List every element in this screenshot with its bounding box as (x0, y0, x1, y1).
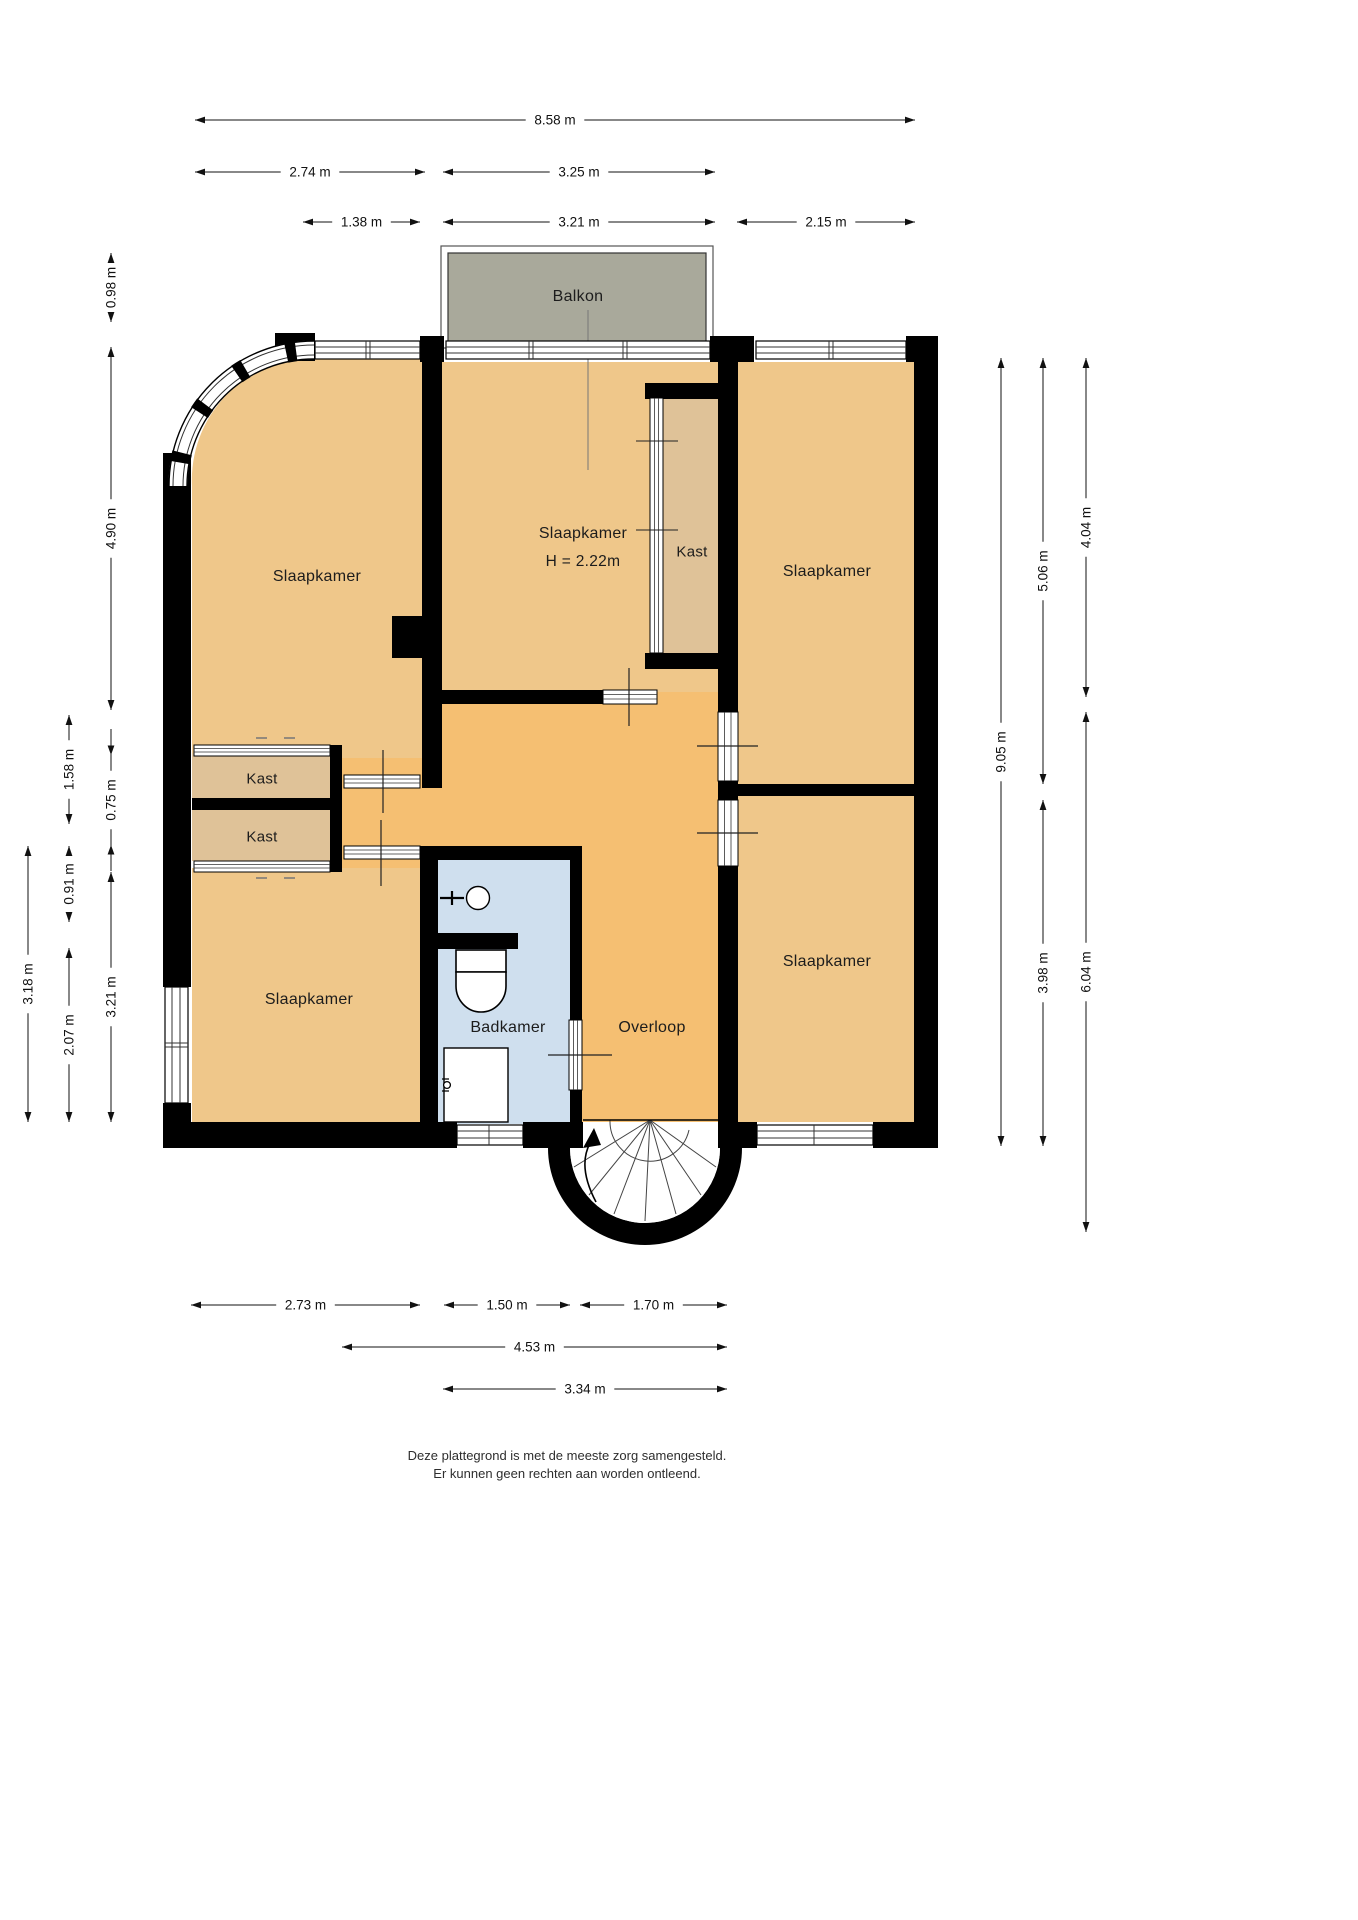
shower-tray (442, 1048, 508, 1122)
dimension-label: 1.58 m (62, 749, 77, 790)
room-label-slaapkamer-bottom-left: Slaapkamer (265, 991, 353, 1009)
room-label-kast-middle: Kast (676, 544, 707, 561)
dimension-label: 9.05 m (994, 731, 1009, 772)
room-label-badkamer: Badkamer (470, 1019, 545, 1037)
dimension-label: 0.91 m (62, 863, 77, 904)
dimension-label: 0.75 m (104, 779, 119, 820)
wall-hall-right-lower (718, 866, 738, 1148)
disclaimer-footer: Deze plattegrond is met de meeste zorg s… (408, 1447, 727, 1483)
dimension-label: 6.04 m (1079, 951, 1094, 992)
room-fills (192, 358, 914, 1124)
dimension-label: 3.18 m (21, 963, 36, 1004)
wall-right-exterior (914, 336, 938, 1148)
dimension-label: 8.58 m (534, 113, 575, 128)
room-label-ceiling-height: H = 2.22m (546, 553, 621, 571)
wall-hall-right-mid (718, 781, 738, 800)
disclaimer-line-2: Er kunnen geen rechten aan worden ontlee… (408, 1465, 727, 1483)
dimension-label: 1.70 m (633, 1298, 674, 1313)
dimension-label: 2.74 m (289, 165, 330, 180)
wall-kast-stub-bottom (645, 653, 720, 669)
window-balcony (446, 341, 710, 359)
wall-bathroom-right-upper (570, 860, 582, 1020)
room-label-slaapkamer-top-left: Slaapkamer (273, 568, 361, 586)
dimension-label: 3.98 m (1036, 952, 1051, 993)
window-left-wall (165, 987, 188, 1103)
floorplan-page: 8.58 m2.74 m3.25 m1.38 m3.21 m2.15 m2.73… (0, 0, 1358, 1920)
wall-bathroom-right-lower (570, 1090, 582, 1122)
closet-1-slider (194, 745, 330, 756)
wall-bathroom-stub (438, 933, 518, 949)
toilet (456, 950, 506, 1012)
wall-closet-divider (192, 798, 332, 810)
room-label-slaapkamer-middle: Slaapkamer (539, 525, 627, 543)
dimension-label: 2.15 m (805, 215, 846, 230)
wall-kast-stub-top (645, 383, 720, 399)
room-label-overloop: Overloop (618, 1019, 685, 1037)
window-top-left (315, 341, 420, 359)
bedroom-top-left-floor (192, 358, 441, 758)
dimension-label: 3.34 m (564, 1382, 605, 1397)
dimension-label: 4.53 m (514, 1340, 555, 1355)
dimension-label: 2.07 m (62, 1014, 77, 1055)
floorplan-drawing: 8.58 m2.74 m3.25 m1.38 m3.21 m2.15 m2.73… (0, 0, 1358, 1920)
dimension-label: 4.90 m (104, 508, 119, 549)
dimension-label: 3.25 m (558, 165, 599, 180)
wall-left-exterior-upper (163, 453, 191, 987)
room-label-balkon: Balkon (553, 288, 604, 306)
dimension-label: 4.04 m (1079, 507, 1094, 548)
dimension-label: 3.21 m (558, 215, 599, 230)
wall-hall-right-upper (718, 336, 738, 712)
dimension-label: 5.06 m (1036, 550, 1051, 591)
disclaimer-line-1: Deze plattegrond is met de meeste zorg s… (408, 1447, 727, 1465)
room-label-slaapkamer-top-right: Slaapkamer (783, 563, 871, 581)
room-label-kast-2: Kast (246, 829, 277, 846)
window-bottom-bathroom (457, 1125, 523, 1145)
window-bottom-right (757, 1125, 873, 1145)
wall-pilaster (392, 616, 422, 658)
window-top-right (756, 341, 906, 359)
dimension-label: 0.98 m (104, 267, 119, 308)
wall-bedrooms-left (422, 362, 442, 788)
wall-right-bedrooms-divider (736, 784, 916, 796)
dimension-label: 2.73 m (285, 1298, 326, 1313)
wall-bathroom-top (420, 846, 582, 860)
dimension-label: 1.50 m (486, 1298, 527, 1313)
closet-2-slider (194, 861, 330, 872)
dimension-label: 1.38 m (341, 215, 382, 230)
dimension-label: 3.21 m (104, 976, 119, 1017)
room-label-slaapkamer-bottom-right: Slaapkamer (783, 953, 871, 971)
closet-middle-floor (663, 399, 718, 653)
wall-bathroom-left (420, 846, 438, 1122)
room-label-kast-1: Kast (246, 771, 277, 788)
wall-middle-bedroom-bottom (441, 690, 603, 704)
